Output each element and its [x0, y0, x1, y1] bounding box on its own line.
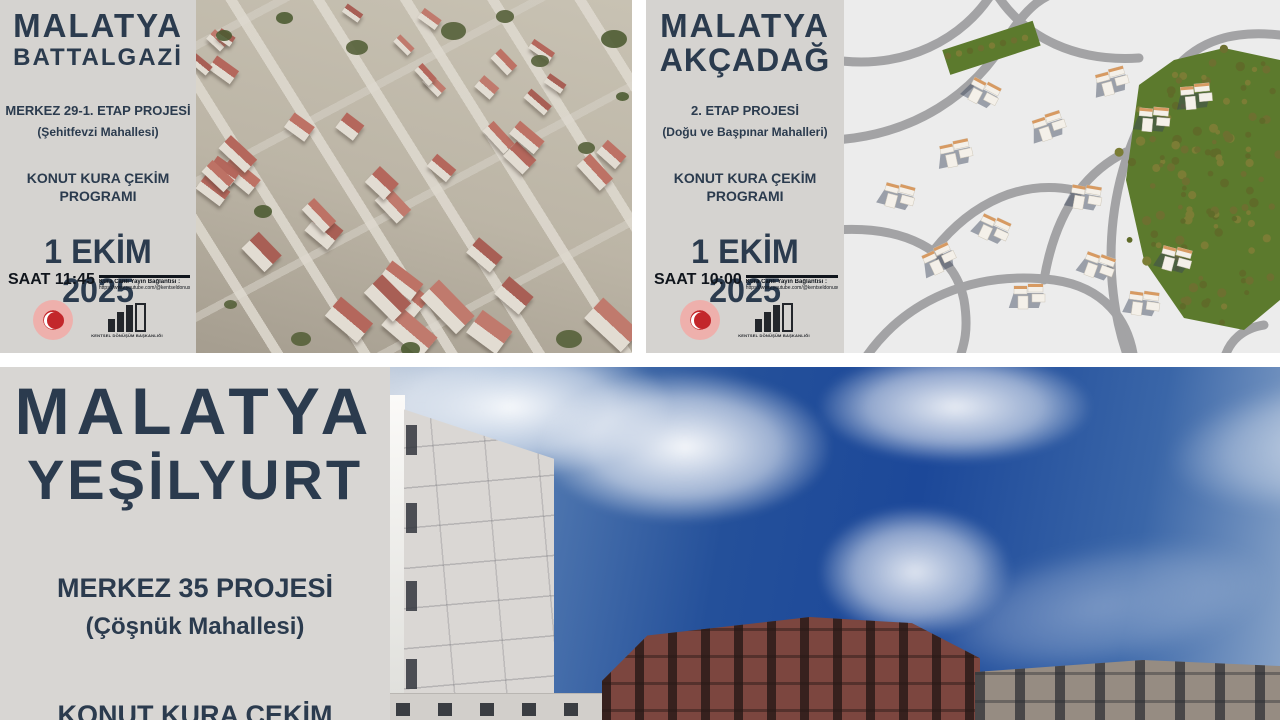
cloud [1163, 367, 1280, 529]
poster-yesilyurt: MALATYA YEŞİLYURT MERKEZ 35 PROJESİ (Çöş… [0, 367, 1280, 720]
buildings-bars-icon [108, 302, 146, 332]
akcadag-info-panel: MALATYA AKÇADAĞ 2. ETAP PROJESİ (Doğu ve… [646, 0, 844, 353]
battalgazi-time: SAAT 11:45 [8, 272, 95, 288]
battalgazi-district-title: BATTALGAZİ [0, 44, 196, 72]
kentsel-donusum-logo: KENTSEL DÖNÜŞÜM BAŞKANLIĞI [738, 302, 810, 338]
cloud [820, 367, 1090, 462]
battalgazi-city-title: MALATYA [0, 7, 196, 45]
agency-caption: KENTSEL DÖNÜŞÜM BAŞKANLIĞI [91, 333, 163, 338]
siteplan-render [844, 0, 1280, 353]
tree-patch [216, 30, 232, 41]
yesilyurt-render-photo [390, 367, 1280, 720]
divider-line [99, 275, 190, 278]
ministry-emblem-logo [33, 300, 73, 340]
yesilyurt-info-panel: MALATYA YEŞİLYURT MERKEZ 35 PROJESİ (Çöş… [0, 367, 390, 720]
battalgazi-program-line2: PROGRAMI [0, 188, 196, 204]
battalgazi-info-panel: MALATYA BATTALGAZİ MERKEZ 29-1. ETAP PRO… [0, 0, 196, 353]
poster-akcadag: MALATYA AKÇADAĞ 2. ETAP PROJESİ (Doğu ve… [646, 0, 1280, 353]
tree-patch [346, 40, 368, 55]
gray-building-windows [406, 425, 417, 720]
buildings-bars-icon [755, 302, 793, 332]
yesilyurt-city-title: MALATYA [0, 373, 390, 449]
akcadag-program-line1: KONUT KURA ÇEKİM [646, 170, 844, 186]
bar-icon [126, 305, 133, 332]
akcadag-siteplan-photo [844, 0, 1280, 353]
yesilyurt-project-label: MERKEZ 35 PROJESİ [0, 573, 390, 604]
bar-icon [117, 312, 124, 332]
battalgazi-time-row: SAAT 11:45 Kura Canlı Yayın Bağlantısı :… [8, 272, 190, 291]
cloud [540, 372, 830, 522]
akcadag-city-title: MALATYA [646, 7, 844, 45]
bar-icon [773, 305, 780, 332]
battalgazi-stream-url: https://www.youtube.com/@kentseldonusumb… [99, 285, 190, 291]
building-outline-icon [135, 303, 146, 332]
battalgazi-logos-row: KENTSEL DÖNÜŞÜM BAŞKANLIĞI [0, 300, 196, 340]
brown-apartment-building [602, 617, 980, 720]
building-outline-icon [782, 303, 793, 332]
battalgazi-neighborhood-label: (Şehitfevzi Mahallesi) [0, 125, 196, 139]
akcadag-stream-info: Kura Canlı Yayın Bağlantısı : https://ww… [746, 275, 838, 291]
low-building-wing [390, 693, 608, 720]
akcadag-time: SAAT 10:00 [654, 272, 742, 288]
akcadag-stream-url: https://www.youtube.com/@kentseldonusumb… [746, 285, 838, 291]
akcadag-program-line2: PROGRAMI [646, 188, 844, 204]
gray-building-edge [390, 395, 405, 720]
tree-patch [276, 12, 293, 24]
tree-patch [401, 342, 420, 353]
yesilyurt-district-title: YEŞİLYURT [0, 447, 390, 512]
kentsel-donusum-logo: KENTSEL DÖNÜŞÜM BAŞKANLIĞI [91, 302, 163, 338]
tree-patch [441, 22, 466, 40]
poster-collage: MALATYA BATTALGAZİ MERKEZ 29-1. ETAP PRO… [0, 0, 1280, 720]
tree-patch [291, 332, 311, 346]
akcadag-time-row: SAAT 10:00 Kura Canlı Yayın Bağlantısı :… [654, 272, 838, 291]
akcadag-project-label: 2. ETAP PROJESİ [646, 103, 844, 118]
bar-icon [755, 319, 762, 332]
bar-icon [108, 319, 115, 332]
akcadag-logos-row: KENTSEL DÖNÜŞÜM BAŞKANLIĞI [646, 300, 844, 340]
tree-patch [616, 92, 629, 101]
battalgazi-stream-info: Kura Canlı Yayın Bağlantısı : https://ww… [99, 275, 190, 291]
battalgazi-project-label: MERKEZ 29-1. ETAP PROJESİ [0, 103, 196, 118]
bar-icon [764, 312, 771, 332]
akcadag-district-title: AKÇADAĞ [646, 42, 844, 79]
battalgazi-aerial-photo [196, 0, 632, 353]
yesilyurt-neighborhood-label: (Çöşnük Mahallesi) [0, 613, 390, 641]
ministry-emblem-logo [680, 300, 720, 340]
tree-patch [531, 55, 549, 67]
battalgazi-program-line1: KONUT KURA ÇEKİM [0, 170, 196, 186]
yesilyurt-program-partial: KONUT KURA ÇEKİM [0, 700, 390, 720]
agency-caption: KENTSEL DÖNÜŞÜM BAŞKANLIĞI [738, 333, 810, 338]
tan-apartment-building [975, 660, 1280, 720]
poster-battalgazi: MALATYA BATTALGAZİ MERKEZ 29-1. ETAP PRO… [0, 0, 632, 353]
akcadag-neighborhood-label: (Doğu ve Başpınar Mahalleri) [646, 125, 844, 139]
divider-line [746, 275, 838, 278]
